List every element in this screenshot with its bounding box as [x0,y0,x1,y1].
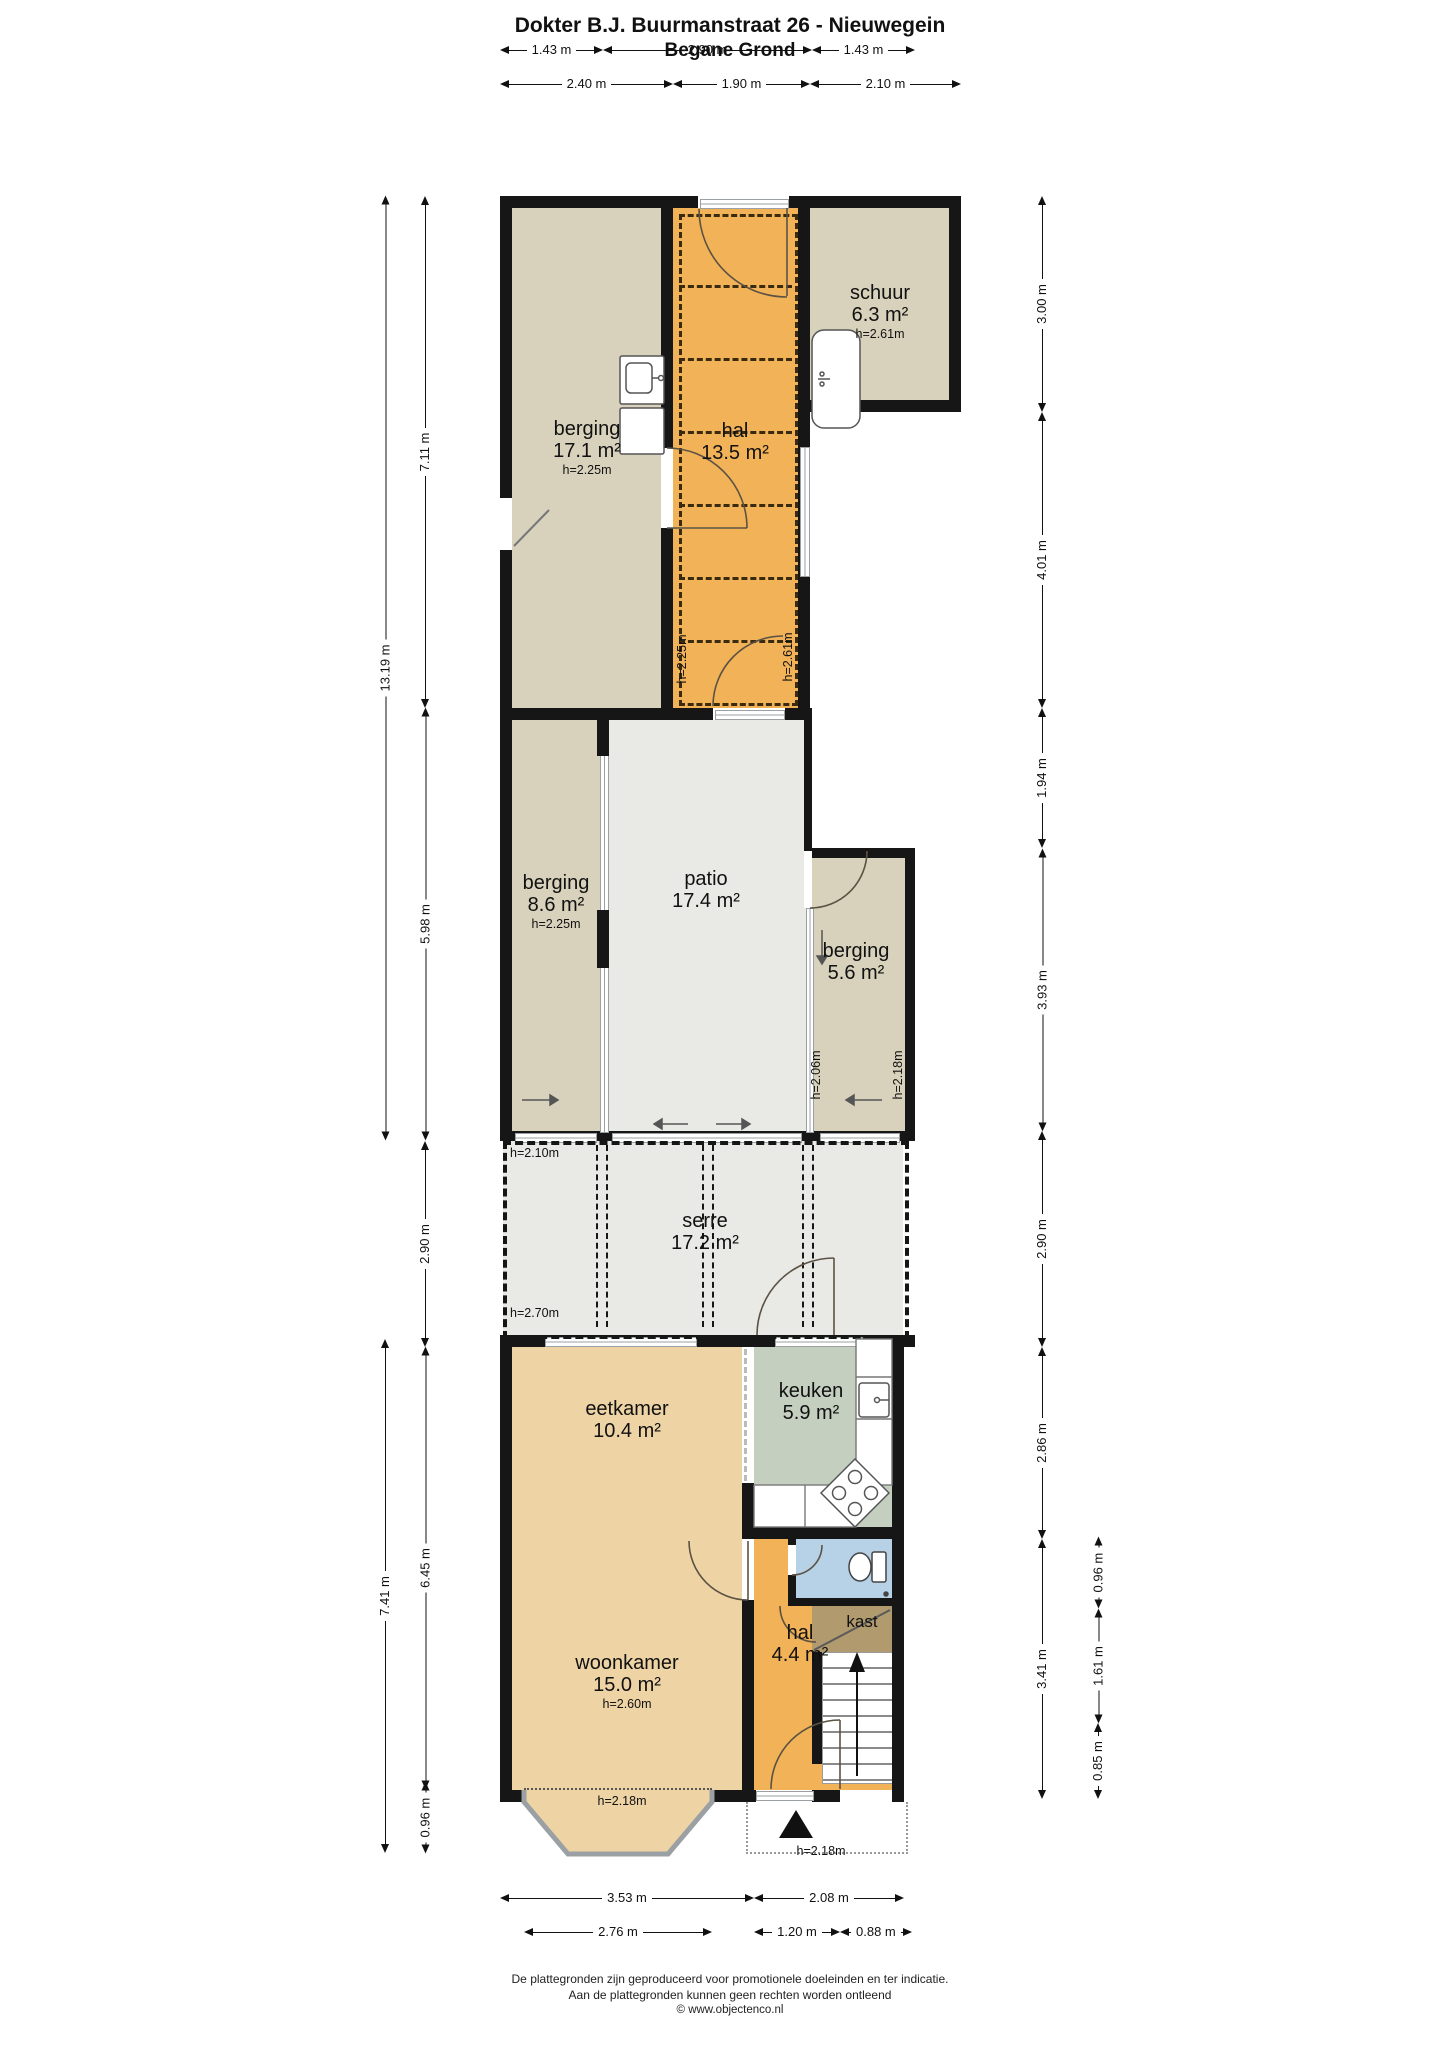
room-label-woonkamer: woonkamer 15.0 m² h=2.60m [512,1652,742,1711]
room-label-patio: patio 17.4 m² [606,868,806,913]
hal-boven-dashed-rung [679,577,792,580]
room-patio-floor [606,720,806,1131]
dim-top1-1: 2.90 m [603,43,812,57]
room-label-berging-achter: berging 17.1 m² h=2.25m [512,418,662,477]
dim-right-inner-6: 3.41 m [1035,1539,1049,1799]
entrance-sidelight [756,1791,814,1801]
footer-disclaimer: De plattegronden zijn geproduceerd voor … [360,1972,1100,2018]
hal-boven-dashed-rung [679,640,792,643]
hal-boven-dashed-rung [679,504,792,507]
wall [788,1598,892,1606]
footer-line-2: Aan de plattegronden kunnen geen rechten… [360,1988,1100,2004]
room-label-berging-links: berging 8.6 m² h=2.25m [498,872,614,931]
wall [804,708,812,851]
wall [742,1483,754,1527]
height-label-serre-bottom: h=2.70m [510,1306,559,1320]
window [800,447,810,577]
wall [742,1527,904,1539]
dim-right-inner-4: 2.90 m [1035,1131,1049,1347]
footer-line-1: De plattegronden zijn geproduceerd voor … [360,1972,1100,1988]
footer-line-3: © www.objectenco.nl [360,2003,1100,2018]
floorplan-page: Dokter B.J. Buurmanstraat 26 - Nieuwegei… [0,0,1449,2048]
wall [500,1347,512,1802]
height-label-bay-window: h=2.18m [582,1794,662,1808]
wall [500,196,512,720]
dim-right-inner-1: 4.01 m [1035,412,1049,708]
dim-top2-1: 1.90 m [673,77,810,91]
dim-left-outer-1: 7.41 m [378,1339,392,1853]
dim-right-inner-0: 3.00 m [1035,196,1049,412]
wall [742,1790,756,1802]
page-title: Dokter B.J. Buurmanstraat 26 - Nieuwegei… [390,14,1070,38]
dim-right-inner-2: 1.94 m [1035,708,1049,848]
wall [812,1790,840,1802]
wall [949,196,961,412]
dim-bottom2-2: 0.88 m [840,1925,904,1939]
wall [810,400,961,412]
bay-opening-line [524,1788,712,1790]
room-label-keuken: keuken 5.9 m² [748,1380,874,1425]
hal-boven-dashed-rung [679,358,792,361]
dim-right-outer-1: 1.61 m [1092,1609,1106,1724]
wall [500,1790,524,1802]
wall [597,708,609,756]
window-opening [500,498,512,550]
glazed-door [700,199,789,209]
height-label-serre-top: h=2.10m [510,1146,559,1160]
room-toilet-floor [796,1539,892,1598]
room-label-serre: serre 17.2 m² [505,1210,905,1255]
glazed-door [715,710,785,720]
wall [812,1652,822,1764]
dim-bottom2-1: 1.20 m [754,1925,840,1939]
dim-left-inner-2: 2.90 m [418,1141,432,1347]
dim-right-inner-5: 2.86 m [1035,1347,1049,1539]
room-keuken-floor [754,1347,892,1527]
wall [892,1790,904,1802]
wall [905,848,915,1131]
wall [712,1790,742,1802]
hal-boven-dashed-rung [679,285,792,288]
height-label-hal-left: h=2.25m [675,631,689,687]
room-label-eetkamer: eetkamer 10.4 m² [512,1398,742,1443]
height-label-entrance: h=2.18m [786,1844,856,1858]
dim-top1-0: 1.43 m [500,43,603,57]
door-opening [788,1545,796,1575]
dim-left-inner-1: 5.98 m [419,708,433,1141]
dim-left-outer-0: 13.19 m [379,196,393,1141]
dim-right-outer-0: 0.96 m [1092,1540,1106,1609]
height-label-patio-right: h=2.06m [809,1047,823,1103]
dim-left-inner-0: 7.11 m [418,196,432,708]
height-label-hal-right: h=2.61m [781,629,795,685]
dim-bottom1-0: 3.53 m [500,1891,754,1905]
dim-top2-2: 2.10 m [810,77,961,91]
dim-left-inner-4: 0.96 m [419,1791,433,1854]
height-label-berging-right: h=2.18m [891,1047,905,1103]
room-label-kast: kast [826,1612,898,1631]
wall [892,1347,904,1802]
wall [806,848,915,858]
dim-left-inner-3: 6.45 m [419,1347,433,1790]
dim-bottom2-0: 2.76 m [524,1925,712,1939]
room-label-schuur: schuur 6.3 m² h=2.61m [810,282,950,341]
dim-bottom1-1: 2.08 m [754,1891,904,1905]
dim-right-inner-3: 3.93 m [1036,849,1050,1132]
dim-top2-0: 2.40 m [500,77,673,91]
dim-right-outer-2: 0.85 m [1091,1723,1105,1799]
room-label-berging-rechts: berging 5.6 m² [800,940,912,985]
room-label-hal-boven: hal 13.5 m² [667,420,803,465]
dim-top1-2: 1.43 m [812,43,915,57]
staircase [822,1652,894,1784]
